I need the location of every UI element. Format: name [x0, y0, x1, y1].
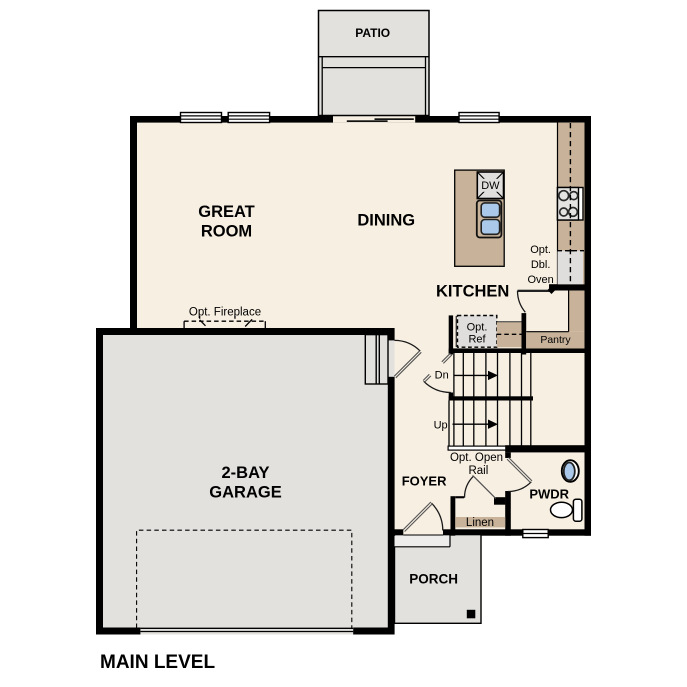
- svg-text:Opt. Fireplace: Opt. Fireplace: [189, 307, 261, 319]
- svg-text:Dbl.: Dbl.: [531, 259, 551, 271]
- svg-text:Rail: Rail: [468, 465, 488, 477]
- svg-text:KITCHEN: KITCHEN: [436, 283, 509, 301]
- svg-text:Ref: Ref: [468, 334, 486, 346]
- svg-text:GARAGE: GARAGE: [209, 483, 281, 501]
- svg-text:DINING: DINING: [357, 212, 415, 230]
- svg-text:Dn: Dn: [435, 370, 449, 382]
- svg-text:MAIN LEVEL: MAIN LEVEL: [100, 652, 215, 673]
- svg-text:Up: Up: [434, 419, 448, 431]
- svg-text:Opt. Open: Opt. Open: [450, 452, 503, 464]
- svg-text:FOYER: FOYER: [402, 474, 447, 489]
- svg-text:PATIO: PATIO: [355, 26, 390, 40]
- svg-text:PWDR: PWDR: [529, 487, 569, 502]
- svg-text:PORCH: PORCH: [409, 572, 458, 587]
- svg-text:2-BAY: 2-BAY: [222, 464, 270, 482]
- svg-text:Linen: Linen: [466, 517, 494, 529]
- svg-text:DW: DW: [481, 180, 500, 192]
- svg-text:GREAT: GREAT: [198, 203, 255, 221]
- svg-text:Opt.: Opt.: [467, 322, 488, 334]
- svg-text:ROOM: ROOM: [201, 223, 252, 241]
- svg-text:Oven: Oven: [527, 274, 553, 286]
- svg-text:Opt.: Opt.: [530, 244, 551, 256]
- svg-text:Pantry: Pantry: [540, 334, 571, 346]
